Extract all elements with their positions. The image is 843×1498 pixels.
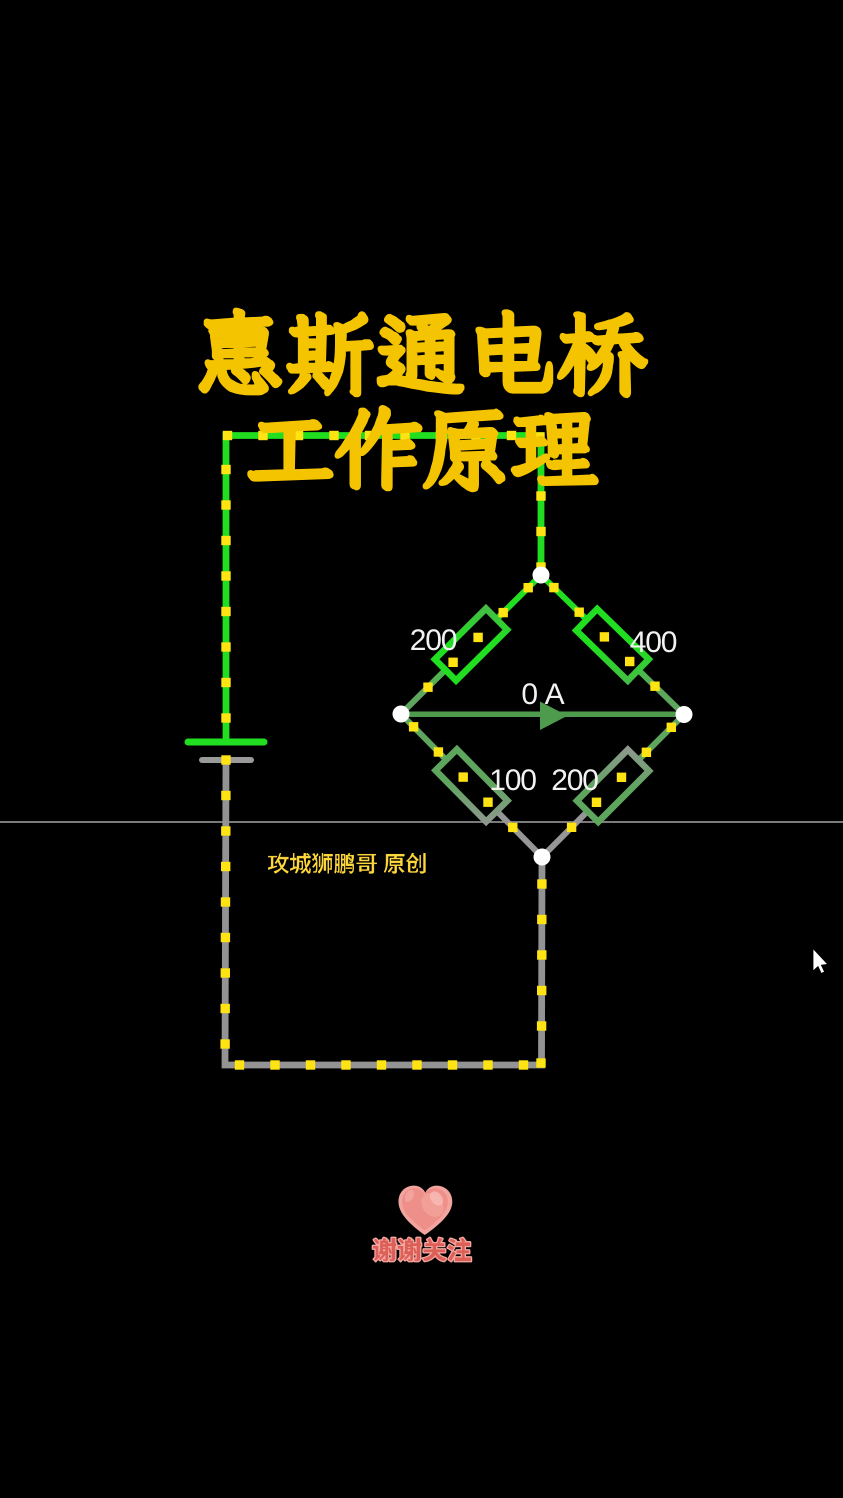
svg-text:200: 200 — [551, 764, 598, 797]
svg-text:100: 100 — [489, 764, 536, 797]
svg-text:200: 200 — [410, 624, 457, 657]
svg-text:400: 400 — [630, 626, 677, 659]
svg-text:0 A: 0 A — [521, 678, 564, 711]
